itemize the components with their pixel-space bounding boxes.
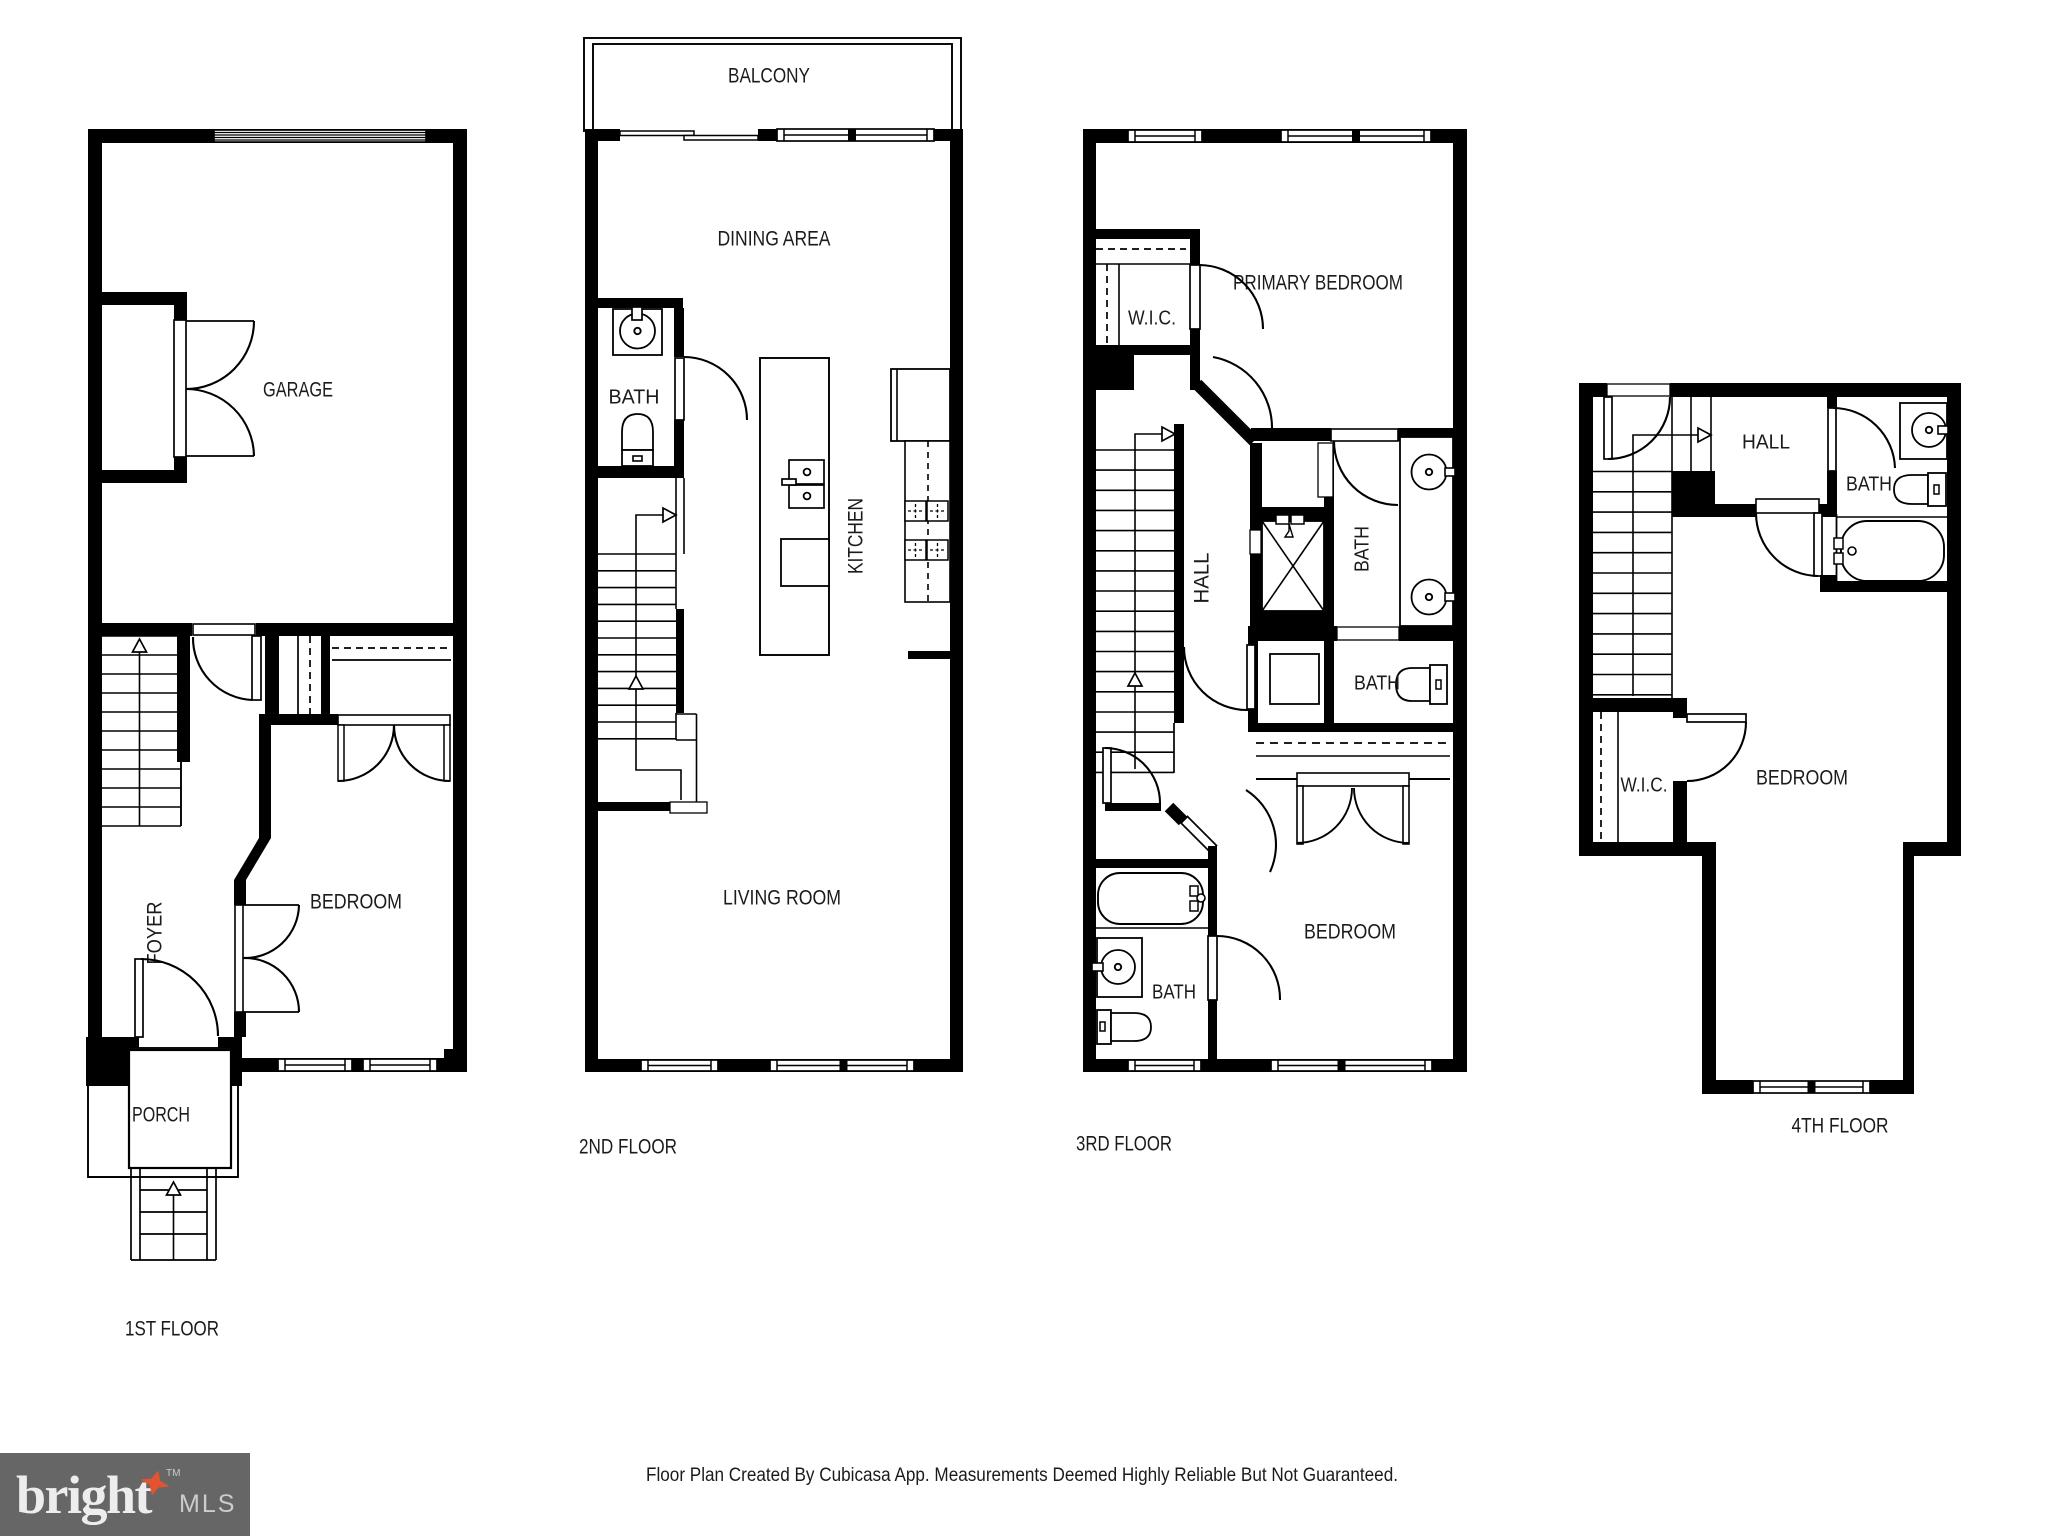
svg-text:BATH: BATH bbox=[1846, 473, 1892, 495]
svg-text:BATH: BATH bbox=[1152, 981, 1196, 1003]
svg-text:BEDROOM: BEDROOM bbox=[310, 891, 402, 914]
svg-text:GARAGE: GARAGE bbox=[263, 379, 333, 402]
svg-text:BATH: BATH bbox=[1354, 672, 1400, 694]
svg-text:BEDROOM: BEDROOM bbox=[1756, 767, 1848, 790]
svg-text:1ST FLOOR: 1ST FLOOR bbox=[125, 1318, 219, 1341]
svg-text:4TH FLOOR: 4TH FLOOR bbox=[1792, 1115, 1889, 1138]
svg-text:LIVING ROOM: LIVING ROOM bbox=[723, 887, 841, 910]
svg-text:BEDROOM: BEDROOM bbox=[1304, 921, 1396, 944]
svg-text:W.I.C.: W.I.C. bbox=[1128, 307, 1176, 329]
svg-text:HALL: HALL bbox=[1742, 431, 1790, 453]
svg-text:BATH: BATH bbox=[609, 386, 660, 408]
svg-text:TM: TM bbox=[166, 1468, 180, 1479]
svg-text:2ND FLOOR: 2ND FLOOR bbox=[579, 1136, 677, 1159]
svg-text:MLS: MLS bbox=[179, 1490, 236, 1518]
svg-text:FOYER: FOYER bbox=[144, 902, 167, 965]
svg-text:DINING AREA: DINING AREA bbox=[718, 228, 831, 251]
svg-text:PRIMARY BEDROOM: PRIMARY BEDROOM bbox=[1233, 272, 1403, 295]
svg-text:3RD FLOOR: 3RD FLOOR bbox=[1076, 1133, 1172, 1156]
svg-text:bright: bright bbox=[16, 1465, 153, 1525]
svg-text:BATH: BATH bbox=[1351, 526, 1373, 572]
svg-text:KITCHEN: KITCHEN bbox=[845, 498, 868, 574]
svg-text:W.I.C.: W.I.C. bbox=[1621, 774, 1668, 796]
svg-text:BALCONY: BALCONY bbox=[728, 65, 810, 88]
svg-text:PORCH: PORCH bbox=[132, 1104, 190, 1127]
svg-text:HALL: HALL bbox=[1191, 553, 1214, 604]
svg-text:Floor Plan Created By Cubicasa: Floor Plan Created By Cubicasa App. Meas… bbox=[646, 1465, 1398, 1486]
